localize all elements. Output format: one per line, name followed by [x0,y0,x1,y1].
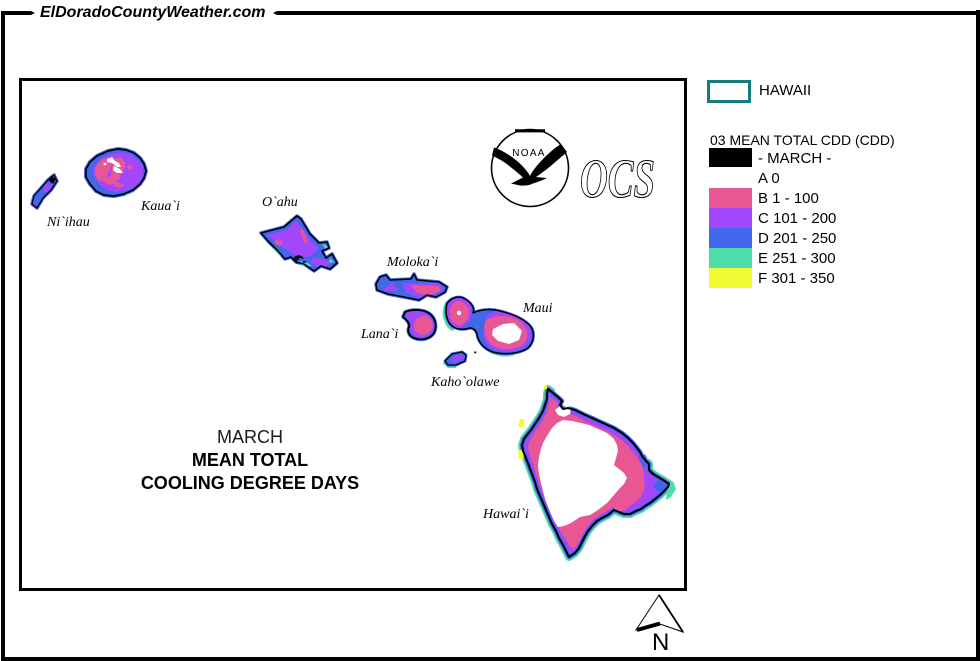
svg-text:NOAA: NOAA [512,148,546,159]
svg-text:OCS: OCS [580,149,655,209]
